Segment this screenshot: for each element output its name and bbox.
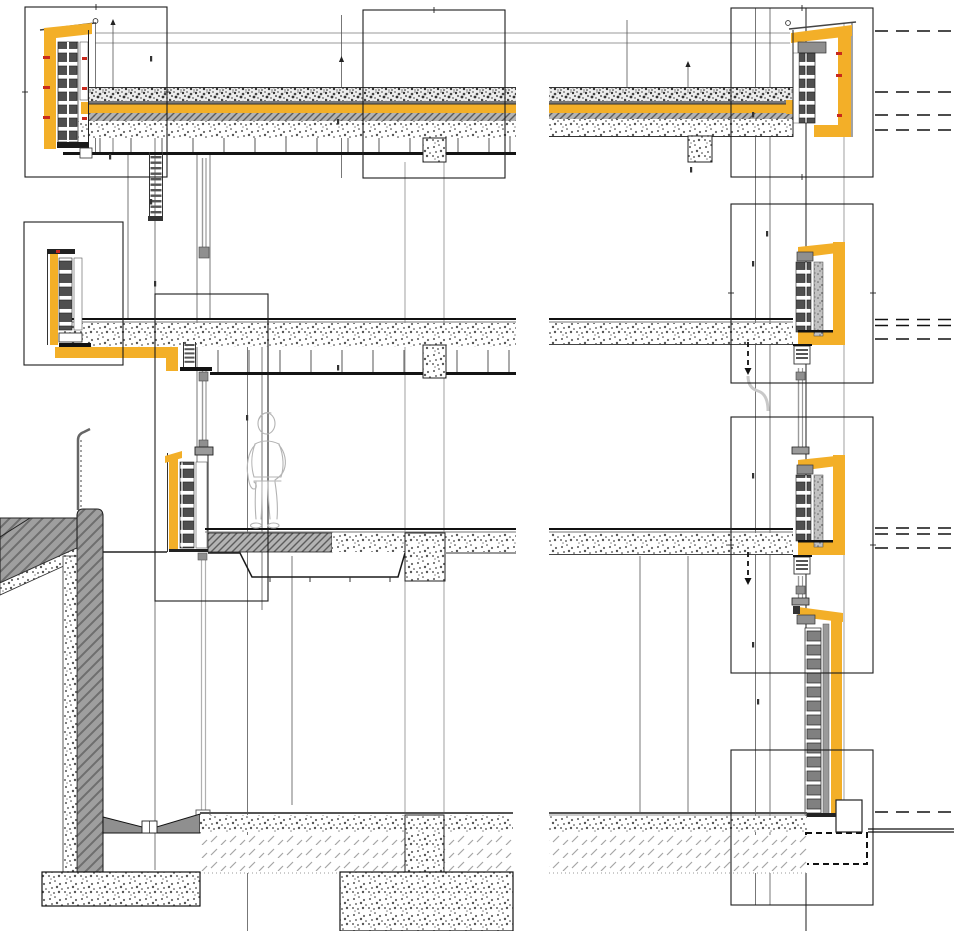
roof-gravel [549,88,793,101]
floor2-right [549,318,793,345]
floor2-downstand-beam [423,345,446,378]
ground-right [549,812,807,873]
retaining-wall [77,509,103,872]
suspended-ceiling [210,372,516,375]
window-fitting [199,247,209,258]
ground-slab [549,816,807,832]
subbase [549,835,807,873]
wall-masonry [59,258,72,330]
subbase [200,835,513,873]
window-head-bar [57,142,89,148]
roof-slab [549,119,793,136]
fastener-mark [56,250,60,253]
detail-masonry [796,475,811,541]
cap-block [798,42,826,53]
section-drawing [0,0,954,931]
roof-downstand-beam [423,138,446,162]
roof-insulation [88,104,516,113]
wall-insulation [50,253,58,345]
floor1-downstand-beam [405,533,445,581]
pad-footing [340,872,513,931]
floor1-screed [208,533,332,552]
roof-insulation [549,104,793,113]
foundation-dashed [806,833,867,864]
floor-slab [549,323,793,345]
window-head-box [59,333,82,342]
window-sill [195,447,213,455]
roof-downstand-beam [688,136,712,162]
drawing-sheet [0,0,954,931]
spandrel-masonry [180,462,194,548]
insulation-upturn [786,100,793,114]
plinth-masonry [805,628,821,815]
plinth-box [836,800,862,832]
floor-slab [549,533,793,555]
detail-masonry [796,262,811,332]
drainage-layer-vertical [63,556,77,872]
wall-cap [47,249,75,254]
roof-slab [63,121,516,138]
roof-screed [88,113,516,121]
suspended-ceiling [63,152,516,155]
parapet-inner-board [80,42,88,100]
column-base [405,815,444,872]
roof-screed [549,113,793,119]
floor1-right [549,528,793,555]
parapet-masonry [799,53,815,123]
strip-footing [42,872,200,906]
roof-gravel [88,88,516,101]
floor2-slab [63,323,516,347]
ground-slab [200,815,513,832]
